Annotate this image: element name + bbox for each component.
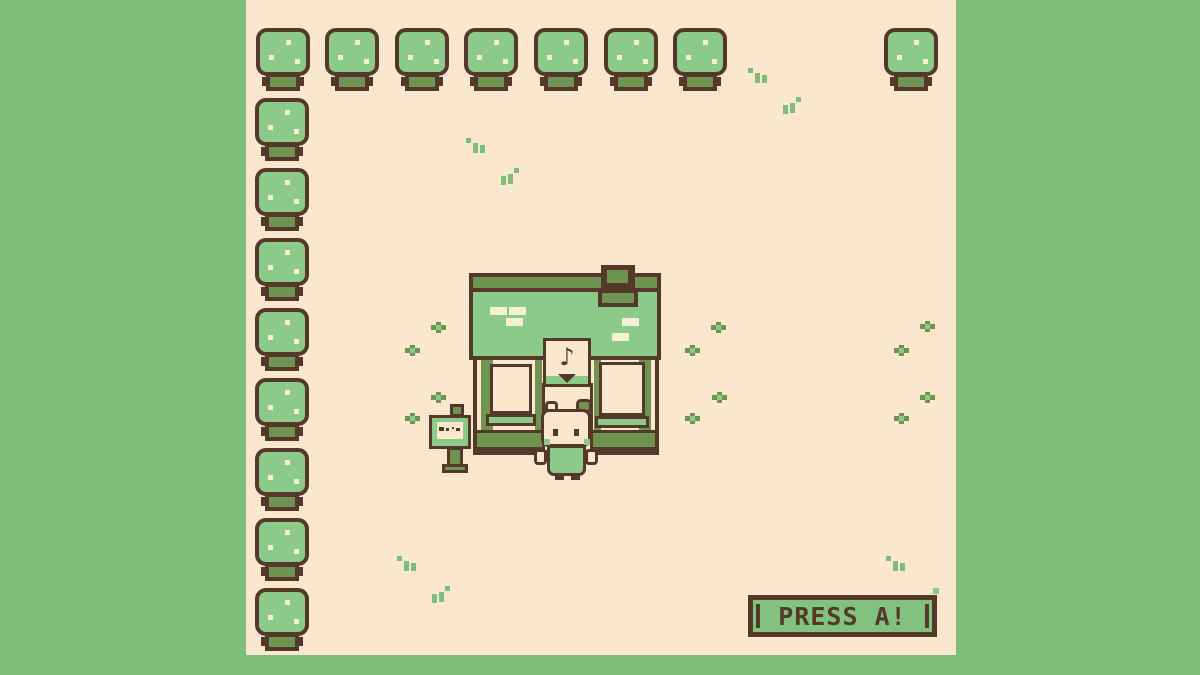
tree xyxy=(255,378,309,444)
flower-sprite xyxy=(405,413,420,424)
tree-canopy xyxy=(604,28,658,76)
roof-speck xyxy=(490,307,507,315)
roof-speck xyxy=(509,307,526,315)
flower-sprite xyxy=(405,345,420,356)
tree xyxy=(255,588,309,654)
roof-speck xyxy=(622,318,639,326)
tree-trunk xyxy=(544,73,578,91)
grass-tuft xyxy=(501,168,521,185)
tree xyxy=(256,28,310,94)
roof-speck xyxy=(612,333,629,341)
tree-trunk xyxy=(265,143,299,161)
tree-canopy xyxy=(256,28,310,76)
tree xyxy=(255,308,309,374)
tree xyxy=(395,28,449,94)
sign-paper xyxy=(437,422,463,439)
sign-scribble xyxy=(446,428,449,431)
tree-canopy xyxy=(255,308,309,356)
sign-scribble xyxy=(456,428,460,431)
sign-scribble xyxy=(439,427,444,431)
flower-sprite xyxy=(894,345,909,356)
tree-canopy xyxy=(884,28,938,76)
tree-canopy xyxy=(673,28,727,76)
tree-canopy xyxy=(464,28,518,76)
tree-trunk xyxy=(683,73,717,91)
tree-trunk xyxy=(265,493,299,511)
tree-trunk xyxy=(894,73,928,91)
tree xyxy=(464,28,518,94)
tree-trunk xyxy=(265,563,299,581)
grass-tuft xyxy=(397,556,417,573)
tree-trunk xyxy=(265,353,299,371)
tree-canopy xyxy=(395,28,449,76)
tree-canopy xyxy=(255,98,309,146)
grass-tuft xyxy=(783,97,803,114)
tree-trunk xyxy=(265,423,299,441)
flower-sprite xyxy=(685,413,700,424)
tree-canopy xyxy=(534,28,588,76)
tree xyxy=(255,168,309,234)
tree xyxy=(255,98,309,164)
character-eye xyxy=(574,429,579,436)
shop-window-right xyxy=(599,362,645,416)
flower-sprite xyxy=(431,392,446,403)
tree-trunk xyxy=(335,73,369,91)
flower-sprite xyxy=(920,392,935,403)
game-viewport[interactable]: ♪ xyxy=(246,0,956,655)
character-eye xyxy=(553,429,558,436)
tree-canopy xyxy=(255,448,309,496)
roof-speck xyxy=(506,318,523,326)
flower-sprite xyxy=(685,345,700,356)
grass-tuft xyxy=(748,68,768,85)
tree xyxy=(325,28,379,94)
game-window: ♪ xyxy=(0,0,1200,675)
grass-tuft xyxy=(432,586,452,603)
prompt-corner-dot xyxy=(933,588,939,594)
tree-trunk xyxy=(265,633,299,651)
flower-sprite xyxy=(920,321,935,332)
shop-window-left xyxy=(490,364,532,414)
character-arm xyxy=(534,449,547,465)
flower-sprite xyxy=(431,322,446,333)
music-note-icon: ♪ xyxy=(546,341,588,373)
shop-chimney-base xyxy=(598,289,638,307)
tree xyxy=(884,28,938,94)
tree-trunk xyxy=(265,213,299,231)
grass-tuft xyxy=(466,138,486,155)
tree xyxy=(255,238,309,304)
shop-door-banner: ♪ xyxy=(543,338,591,387)
grass-tuft xyxy=(886,556,906,573)
sign-scribble xyxy=(452,427,454,429)
tree-trunk xyxy=(614,73,648,91)
banner-chevron xyxy=(558,374,576,383)
flower-sprite xyxy=(894,413,909,424)
tree xyxy=(255,518,309,584)
tree-canopy xyxy=(255,518,309,566)
flower-sprite xyxy=(712,392,727,403)
tree-trunk xyxy=(265,283,299,301)
tree xyxy=(534,28,588,94)
tree-canopy xyxy=(255,378,309,426)
tree xyxy=(255,448,309,514)
press-a-label: PRESS A! xyxy=(778,602,906,631)
tree-trunk xyxy=(266,73,300,91)
character-arm xyxy=(585,449,598,465)
flower-sprite xyxy=(711,322,726,333)
sign-foot xyxy=(442,464,468,473)
tree-canopy xyxy=(255,168,309,216)
tree-trunk xyxy=(474,73,508,91)
tree-canopy xyxy=(325,28,379,76)
window-sill-right xyxy=(595,416,649,428)
tree-canopy xyxy=(255,238,309,286)
sign-board xyxy=(429,415,471,449)
press-a-prompt[interactable]: PRESS A! xyxy=(748,595,937,637)
tree-trunk xyxy=(405,73,439,91)
tree xyxy=(673,28,727,94)
window-sill-left xyxy=(486,414,536,426)
shop-chimney xyxy=(601,265,635,291)
tree xyxy=(604,28,658,94)
character-body xyxy=(547,445,586,476)
tree-canopy xyxy=(255,588,309,636)
